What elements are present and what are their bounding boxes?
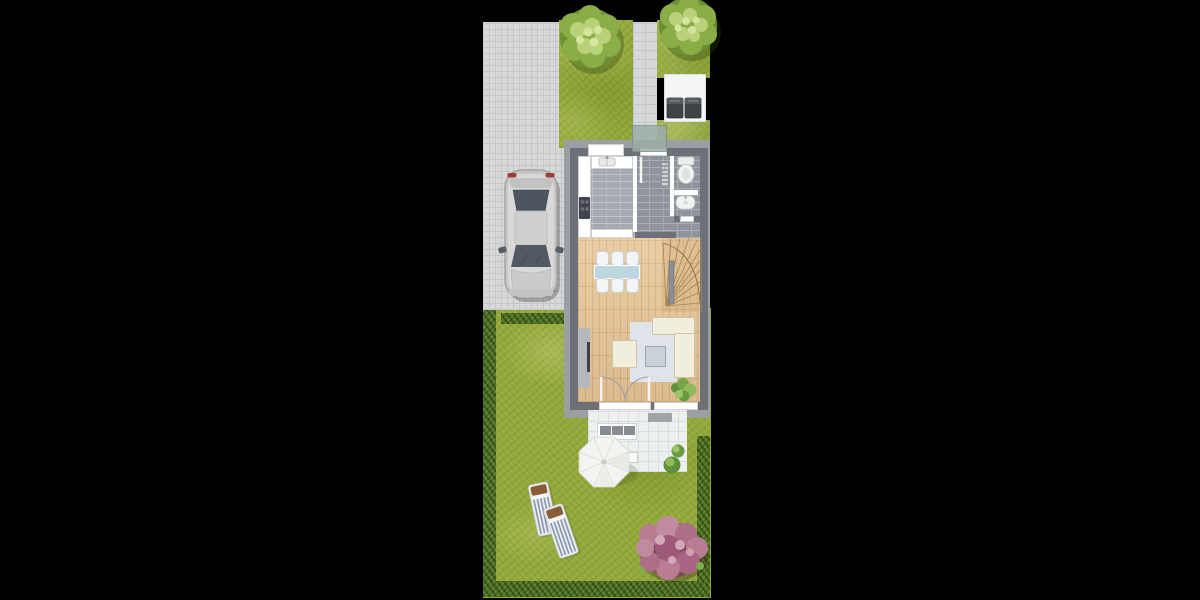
- armchair: [612, 340, 637, 368]
- hedge-driveway-edge: [501, 313, 571, 324]
- parking-pad: [483, 148, 571, 310]
- dining-chair: [596, 251, 609, 266]
- hedge-bottom: [483, 581, 710, 597]
- dining-chair: [611, 278, 624, 293]
- wall-left: [570, 148, 578, 410]
- dining-chair: [596, 278, 609, 293]
- kitchen-counter-top: [591, 156, 633, 169]
- tv: [587, 342, 590, 372]
- wc-half-wall: [670, 190, 698, 195]
- dining-chair: [611, 251, 624, 266]
- floor-plan-canvas: [0, 0, 1200, 600]
- hall-radiator: [661, 162, 669, 188]
- wall-kitchen-hall: [633, 156, 637, 232]
- bench-cushion: [612, 426, 623, 435]
- waste-bin-pad: [664, 74, 706, 122]
- bench-cushion: [600, 426, 611, 435]
- wall-wc-left: [670, 156, 674, 216]
- bench-cushion: [624, 426, 635, 435]
- living-window: [654, 402, 698, 410]
- kitchen-counter-bottom: [591, 229, 633, 238]
- grass-by-bins-top: [657, 20, 710, 78]
- coffee-table: [645, 346, 666, 367]
- kitchen-window: [588, 144, 624, 156]
- terrace-door: [599, 402, 651, 410]
- dining-table: [594, 265, 640, 279]
- hall-bottom-wall: [635, 232, 676, 238]
- kitchen-counter-left: [578, 156, 591, 238]
- hedge-left: [483, 310, 496, 597]
- front-garden-strip: [559, 20, 633, 150]
- entrance-canopy: [632, 125, 667, 152]
- terrace-side-table: [626, 452, 638, 463]
- hedge-right: [697, 436, 710, 583]
- sofa-right-section: [674, 333, 695, 378]
- doormat: [648, 413, 672, 422]
- dining-chair: [626, 278, 639, 293]
- wc-door: [680, 216, 694, 222]
- wall-right: [700, 148, 708, 410]
- driveway: [483, 22, 559, 150]
- dining-chair: [626, 251, 639, 266]
- garden-bench: [597, 423, 637, 440]
